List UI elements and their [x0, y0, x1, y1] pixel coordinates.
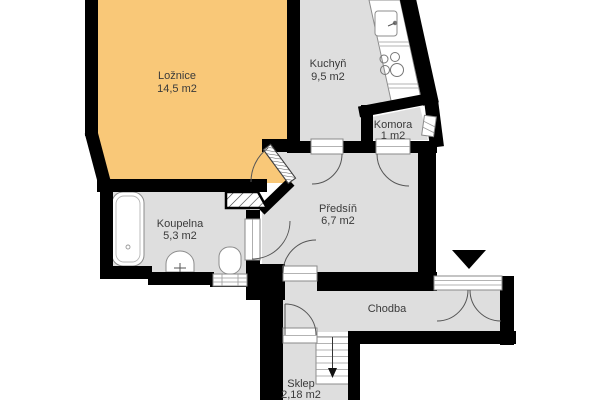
label-koupelna-area: 5,3 m2 [163, 230, 197, 242]
label-loznice-area: 14,5 m2 [157, 83, 197, 95]
room-chodba [317, 290, 500, 332]
bathroom-door-frame [245, 219, 260, 260]
kitchen-sink-icon [375, 11, 397, 36]
entrance-door-frame [434, 276, 502, 290]
label-predsin-area: 6,7 m2 [321, 215, 355, 227]
label-koupelna: Koupelna [157, 218, 204, 230]
label-predsin: Předsíň [319, 203, 357, 215]
bathroom-window [213, 274, 247, 286]
label-loznice: Ložnice [158, 70, 196, 82]
sklep-door-frame [283, 328, 317, 343]
label-sklep-area: 2,18 m2 [281, 389, 321, 400]
komora-window [422, 115, 437, 136]
washbasin-icon [166, 251, 194, 272]
bathtub-icon [112, 192, 144, 266]
toilet-icon [219, 247, 241, 274]
label-chodba: Chodba [368, 303, 407, 315]
predsin-door-frame [283, 266, 317, 281]
label-kuchyn: Kuchyň [310, 58, 347, 70]
label-komora-area: 1 m2 [381, 130, 405, 142]
floorplan: Ložnice 14,5 m2 Kuchyň 9,5 m2 Komora 1 m… [0, 0, 600, 400]
kitchen-door-frame [311, 139, 343, 154]
label-kuchyn-area: 9,5 m2 [311, 71, 345, 83]
floorplan-svg: Ložnice 14,5 m2 Kuchyň 9,5 m2 Komora 1 m… [0, 0, 600, 400]
stairs-icon [316, 337, 349, 384]
